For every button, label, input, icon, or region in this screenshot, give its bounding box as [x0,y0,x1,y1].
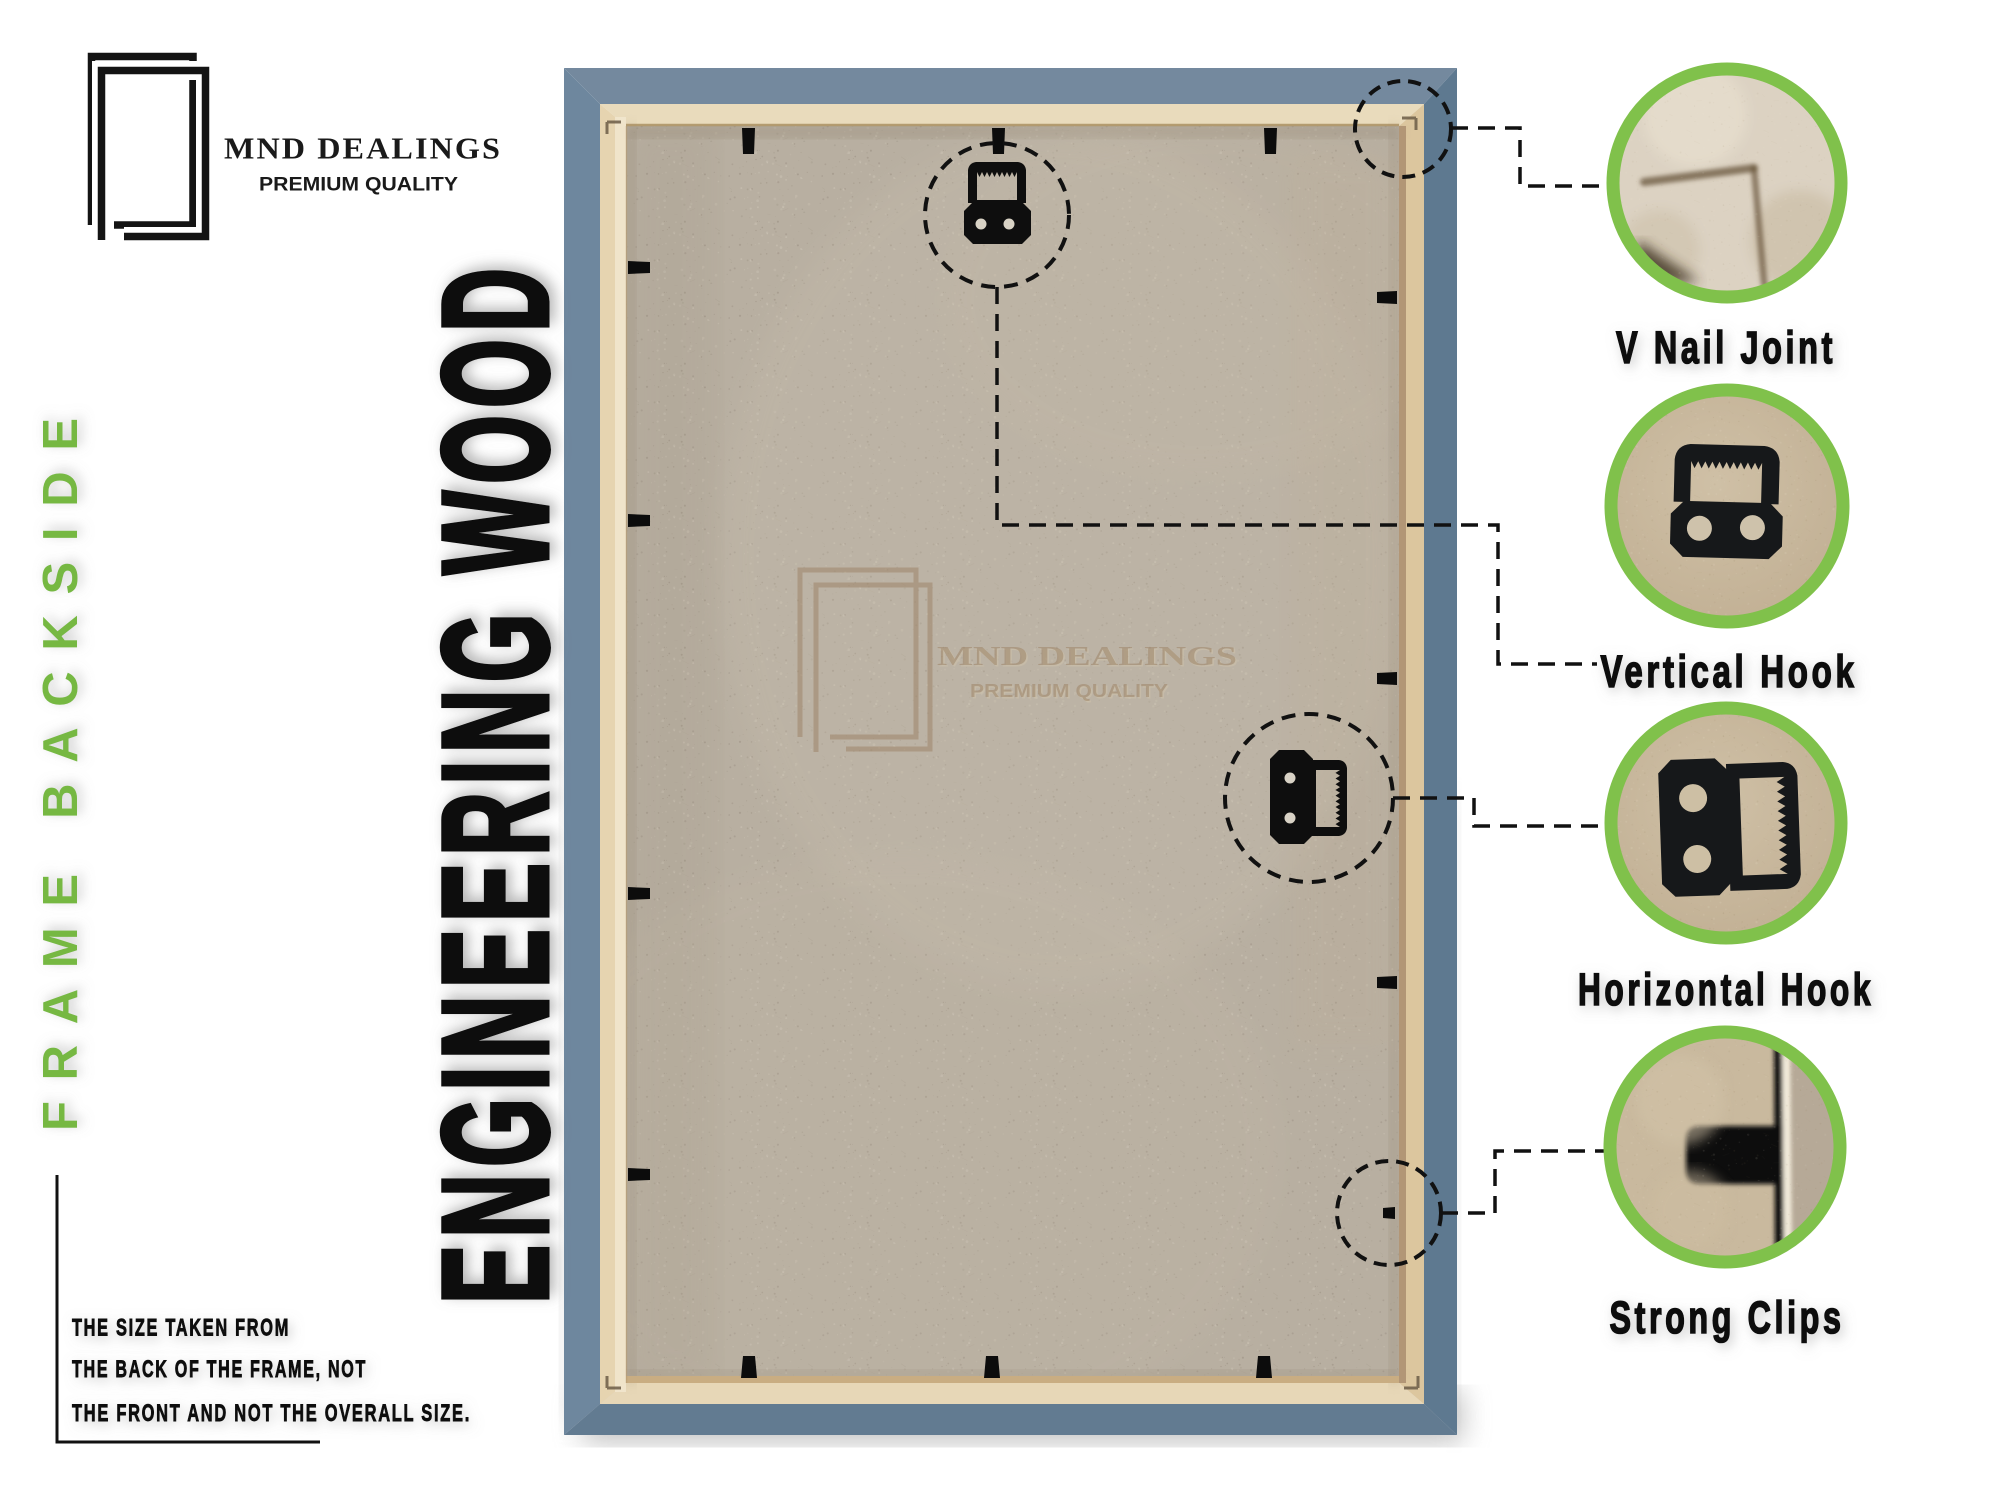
svg-text:Horizontal Hook: Horizontal Hook [1578,964,1874,1015]
svg-text:PREMIUM QUALITY: PREMIUM QUALITY [259,174,458,196]
svg-text:FRAME BACKSIDE: FRAME BACKSIDE [34,404,88,1131]
svg-text:THE SIZE TAKEN FROM: THE SIZE TAKEN FROM [72,1315,290,1342]
svg-text:MND DEALINGS: MND DEALINGS [224,131,502,166]
svg-text:V Nail Joint: V Nail Joint [1616,322,1836,373]
svg-text:ENGINEERING WOOD: ENGINEERING WOOD [411,261,579,1304]
svg-text:MND DEALINGS: MND DEALINGS [937,640,1237,671]
svg-text:THE BACK OF THE FRAME, NOT: THE BACK OF THE FRAME, NOT [72,1356,367,1383]
svg-text:THE FRONT AND NOT THE OVERALL: THE FRONT AND NOT THE OVERALL SIZE. [72,1400,471,1427]
svg-text:Strong Clips: Strong Clips [1610,1292,1845,1343]
svg-text:PREMIUM QUALITY: PREMIUM QUALITY [970,680,1169,701]
svg-text:Vertical Hook: Vertical Hook [1601,646,1858,697]
